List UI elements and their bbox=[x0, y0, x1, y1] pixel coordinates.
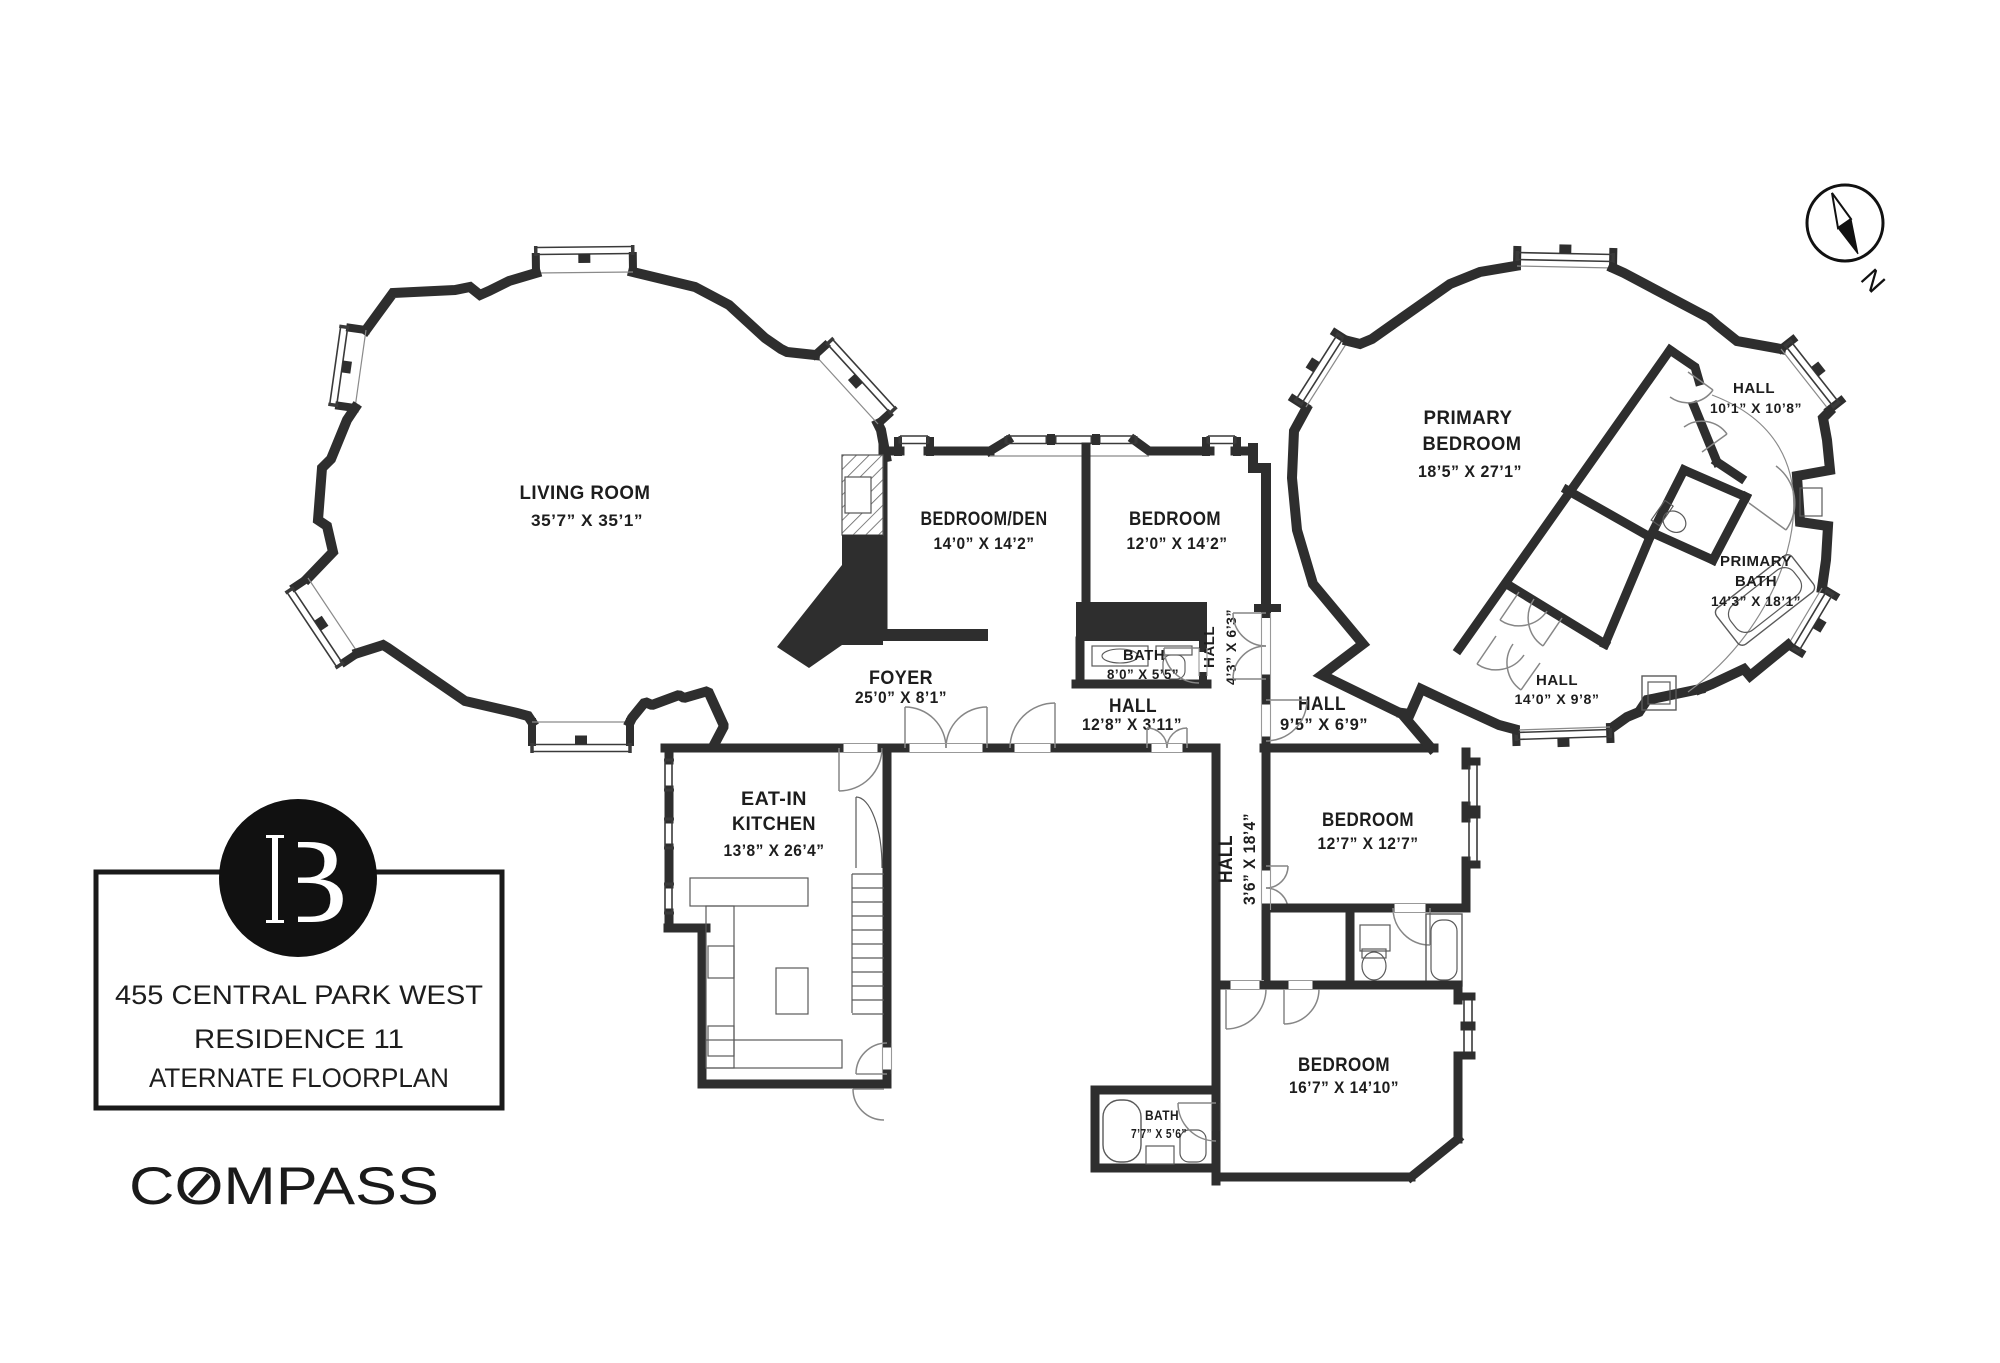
svg-text:14’0” X 14’2”: 14’0” X 14’2” bbox=[934, 534, 1035, 553]
svg-text:18’5” X 27’1”: 18’5” X 27’1” bbox=[1418, 462, 1522, 481]
svg-text:12’7” X 12’7”: 12’7” X 12’7” bbox=[1318, 834, 1419, 853]
svg-text:25’0” X 8’1”: 25’0” X 8’1” bbox=[855, 688, 947, 707]
svg-text:BEDROOM: BEDROOM bbox=[1298, 1054, 1390, 1076]
svg-text:PRIMARY: PRIMARY bbox=[1720, 553, 1792, 570]
svg-text:HALL: HALL bbox=[1733, 380, 1775, 397]
svg-text:14’0” X 9’8”: 14’0” X 9’8” bbox=[1515, 692, 1600, 707]
svg-text:10’1” X 10’8”: 10’1” X 10’8” bbox=[1710, 401, 1802, 416]
svg-text:BEDROOM: BEDROOM bbox=[1129, 508, 1221, 530]
svg-text:455 CENTRAL PARK WEST: 455 CENTRAL PARK WEST bbox=[115, 980, 483, 1010]
svg-text:RESIDENCE 11: RESIDENCE 11 bbox=[194, 1024, 404, 1054]
svg-text:BEDROOM: BEDROOM bbox=[1423, 433, 1522, 455]
svg-text:BEDROOM: BEDROOM bbox=[1322, 809, 1414, 831]
svg-text:4’3” X 6’3”: 4’3” X 6’3” bbox=[1224, 609, 1239, 685]
svg-text:BEDROOM/DEN: BEDROOM/DEN bbox=[921, 508, 1048, 530]
svg-text:3’6” X 18’4”: 3’6” X 18’4” bbox=[1240, 813, 1259, 905]
svg-text:BATH: BATH bbox=[1123, 647, 1165, 664]
svg-text:16’7” X 14’10”: 16’7” X 14’10” bbox=[1289, 1078, 1399, 1097]
svg-text:HALL: HALL bbox=[1201, 626, 1218, 668]
svg-text:14’3” X 18’1”: 14’3” X 18’1” bbox=[1711, 594, 1801, 609]
svg-text:PRIMARY: PRIMARY bbox=[1424, 407, 1513, 429]
svg-text:ATERNATE FLOORPLAN: ATERNATE FLOORPLAN bbox=[149, 1063, 449, 1093]
svg-text:KITCHEN: KITCHEN bbox=[732, 813, 816, 835]
svg-text:HALL: HALL bbox=[1536, 672, 1578, 689]
svg-text:HALL: HALL bbox=[1109, 695, 1157, 717]
svg-text:EAT-IN: EAT-IN bbox=[741, 788, 807, 810]
svg-text:HALL: HALL bbox=[1215, 835, 1237, 883]
svg-text:12’0” X 14’2”: 12’0” X 14’2” bbox=[1127, 534, 1228, 553]
svg-text:12’8” X 3’11”: 12’8” X 3’11” bbox=[1082, 715, 1182, 734]
svg-text:BATH: BATH bbox=[1735, 573, 1777, 590]
svg-text:8’0” X 5’5”: 8’0” X 5’5” bbox=[1107, 667, 1179, 682]
svg-text:BATH: BATH bbox=[1145, 1108, 1179, 1123]
svg-text:13’8” X 26’4”: 13’8” X 26’4” bbox=[724, 841, 825, 860]
svg-text:COMPASS: COMPASS bbox=[129, 1157, 439, 1216]
svg-text:FOYER: FOYER bbox=[869, 667, 933, 689]
svg-text:LIVING ROOM: LIVING ROOM bbox=[520, 482, 651, 504]
svg-text:7’7” X 5’6”: 7’7” X 5’6” bbox=[1131, 1127, 1187, 1141]
svg-text:35’7” X 35’1”: 35’7” X 35’1” bbox=[531, 511, 643, 530]
